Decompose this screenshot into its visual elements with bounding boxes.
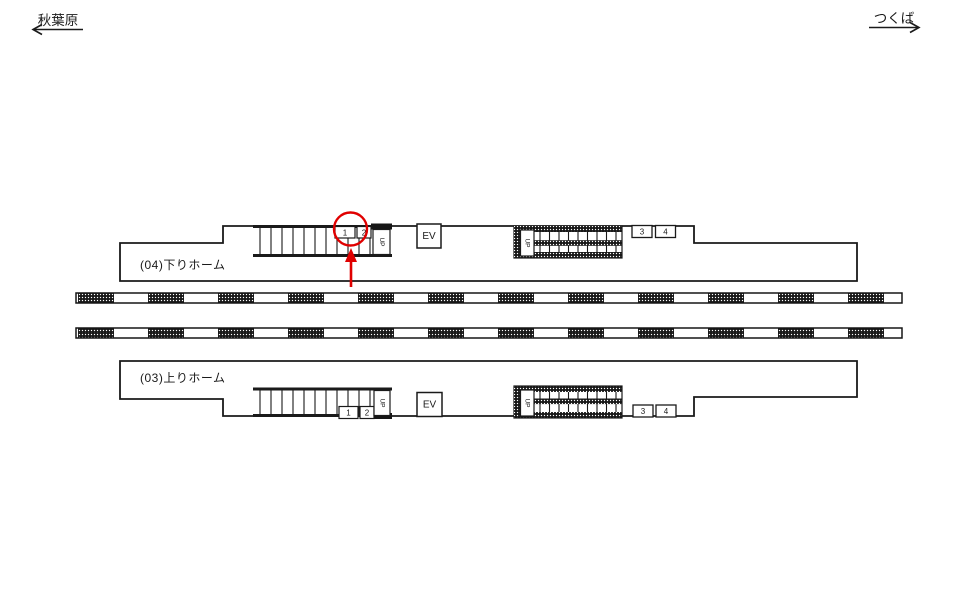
direction-right-label: つくば	[874, 11, 915, 26]
escalator-direction-label: UP	[524, 238, 531, 247]
platform-up-outline	[120, 361, 857, 416]
sign-box-1-label: 1	[346, 409, 351, 418]
diagram-canvas: 秋葉原 つくば (04)下りホーム 1 2 UP EV	[0, 0, 960, 604]
platform-up-escalator: UP	[514, 386, 622, 418]
escalator-rail-left	[514, 386, 521, 418]
sign-box-4-label: 4	[663, 228, 668, 237]
platform-down-outline	[120, 226, 857, 281]
escalator-rail-left	[514, 226, 521, 258]
track-down-line	[76, 293, 902, 303]
stair-landing-block	[371, 224, 392, 230]
stair-escalator-label: UP	[379, 398, 386, 407]
direction-right: つくば	[869, 11, 919, 33]
station-platform-map: 秋葉原 つくば (04)下りホーム 1 2 UP EV	[0, 0, 960, 604]
elevator-label: EV	[422, 231, 436, 242]
platform-down-escalator: UP	[514, 226, 622, 258]
direction-left: 秋葉原	[33, 13, 83, 35]
sign-box-4-label: 4	[664, 407, 669, 416]
platform-down: (04)下りホーム 1 2 UP EV UP 3 4	[120, 213, 857, 288]
direction-left-label: 秋葉原	[38, 13, 79, 28]
elevator-label: EV	[423, 400, 437, 411]
platform-up-label: (03)上りホーム	[140, 371, 225, 385]
track-up-line	[76, 328, 902, 338]
escalator-direction-label: UP	[524, 398, 531, 407]
sign-box-1-label: 1	[343, 228, 348, 237]
stair-escalator-label: UP	[378, 237, 385, 246]
sign-box-3-label: 3	[640, 228, 645, 237]
platform-down-label: (04)下りホーム	[140, 258, 225, 272]
sign-box-2-label: 2	[365, 409, 370, 418]
platform-up: (03)上りホーム 1 2 UP EV UP 3 4	[120, 361, 857, 419]
sign-box-3-label: 3	[641, 407, 646, 416]
